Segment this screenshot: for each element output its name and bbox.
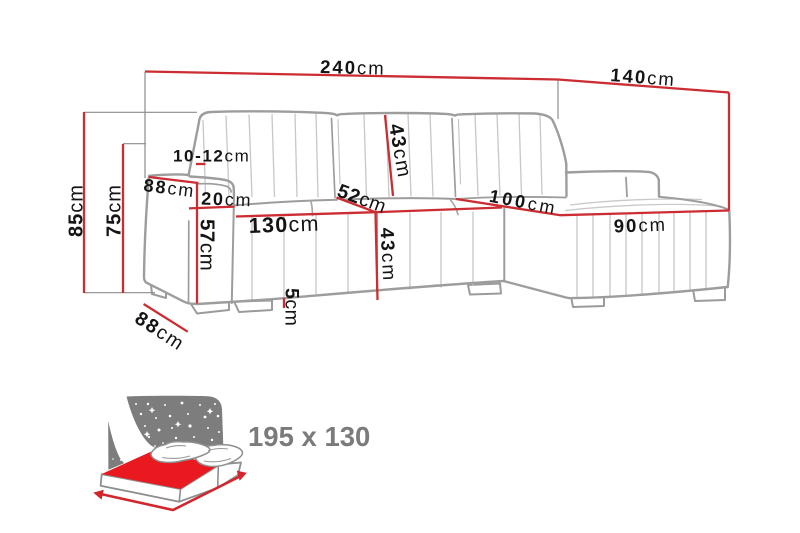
- svg-text:130cm: 130cm: [248, 212, 320, 238]
- svg-text:90cm: 90cm: [613, 214, 667, 237]
- svg-text:75cm: 75cm: [104, 184, 126, 237]
- svg-text:5cm: 5cm: [281, 288, 303, 326]
- svg-text:57cm: 57cm: [196, 219, 219, 271]
- svg-text:43cm: 43cm: [376, 227, 400, 282]
- svg-text:195 x 130: 195 x 130: [248, 421, 370, 452]
- svg-text:10-12cm: 10-12cm: [173, 147, 250, 166]
- svg-text:20cm: 20cm: [201, 189, 253, 211]
- svg-text:85cm: 85cm: [66, 184, 88, 237]
- svg-text:240cm: 240cm: [320, 56, 386, 79]
